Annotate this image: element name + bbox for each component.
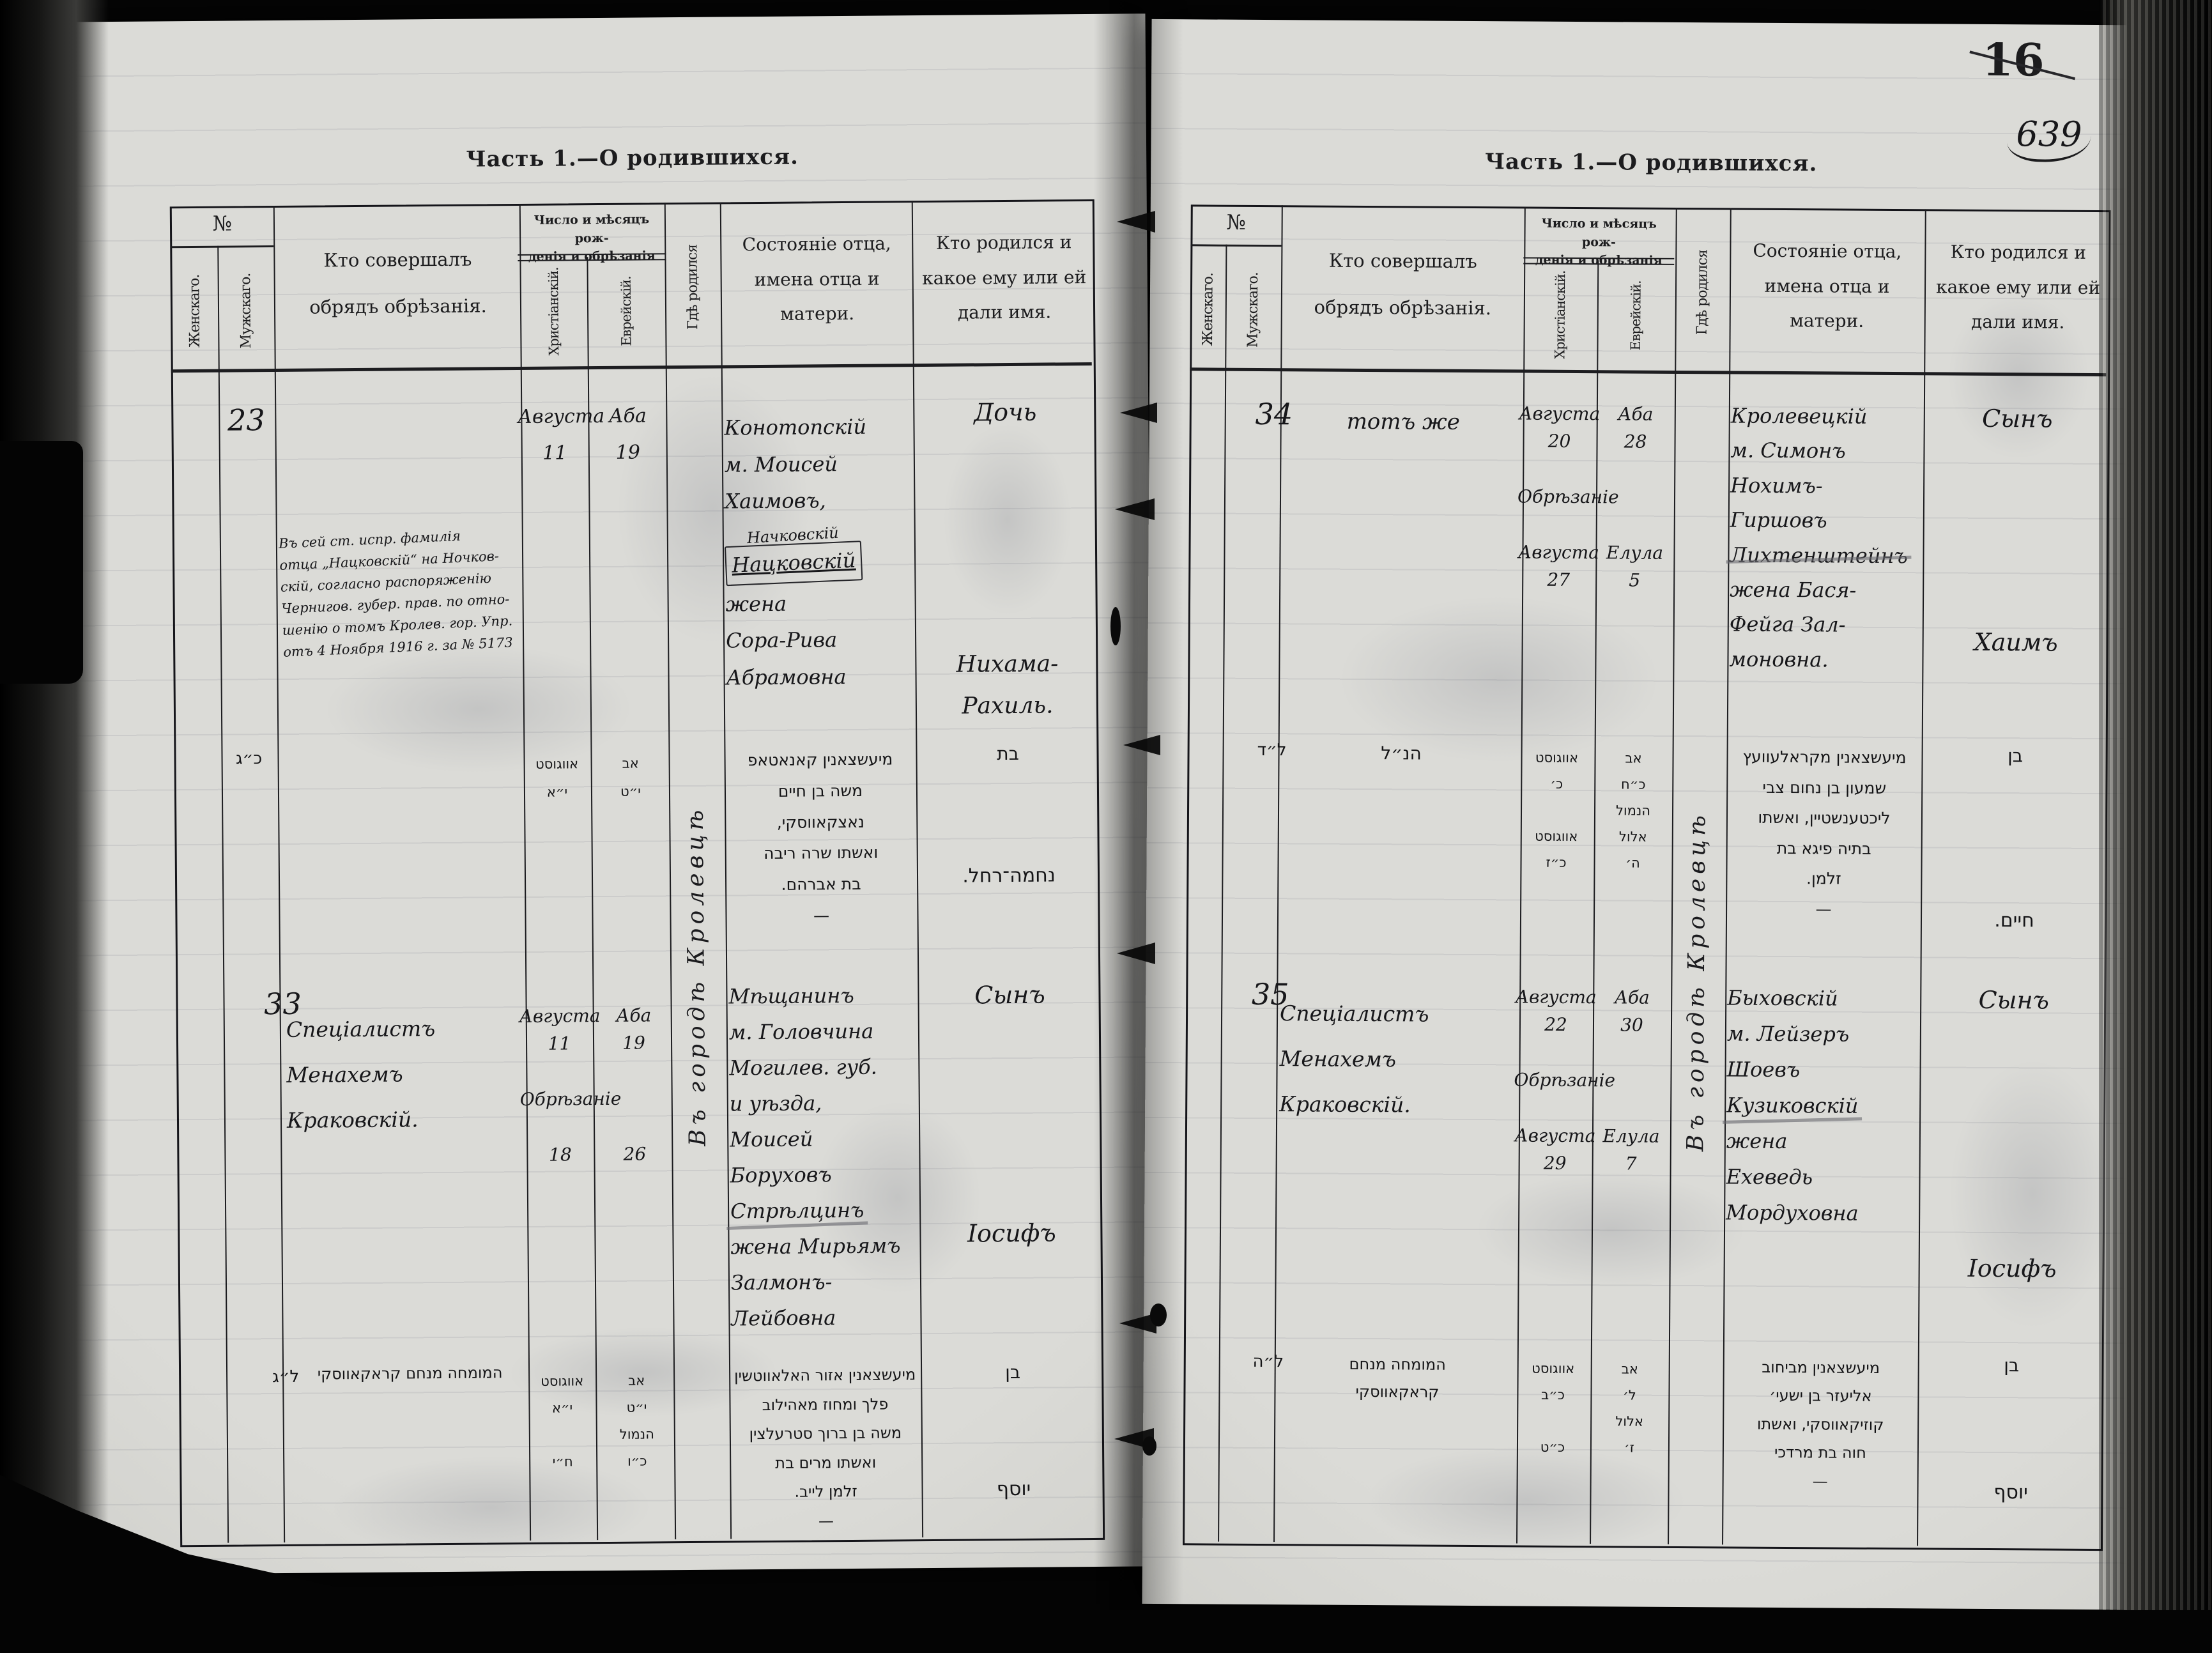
child-name: Іосифъ [1920,1254,2105,1283]
child-type: Дочь [914,397,1096,427]
date-christian: Августа 11 Обрѣзаніе 18 [519,1002,601,1169]
column-header-officiant: Кто совершалъ обрядъ обрѣзанія. [1283,237,1523,331]
child-name: Хаимъ [1924,627,2108,657]
child-name-hebrew: יוסף [1918,1480,2103,1504]
date-christian-hebrew: אווגוסט כ׳ אווגוסט כ״ז [1514,744,1599,875]
mother-text: жена Бася- Фейга Зал- моновна. [1729,572,1924,677]
birthplace-entry-vertical: Въ городѣ Кролевцѣ [663,458,730,1494]
column-header-father: Состояніе отца, имена отца и матери. [721,226,912,332]
left-page-scan: Часть 1.—О родившихся. № Число и мѣсяцъ … [51,13,1157,1574]
child-name: Нихама- Рахиль. [916,643,1098,728]
original-surname-boxed: Нацковскій [725,541,863,586]
printed-folio-number: 16 [1982,33,2045,87]
father-entry-hebrew: מיעשצאנין מביחוב אליעזר בן ישעי׳ קוזיקאו… [1721,1353,1919,1496]
officiant-entry: Спеціалистъ Менахемъ Краковскій. [286,1006,530,1144]
child-name-hebrew: חיים. [1922,909,2107,932]
child-type-hebrew: בן [922,1361,1103,1383]
mother-text: жена Мирьямъ Залмонъ- Лейбовна [730,1227,923,1336]
birthplace-entry-vertical: Въ городѣ Кролевцѣ [1665,463,1728,1499]
father-text: Быховскій м. Лейзеръ Шоевъ [1726,985,1849,1082]
child-type-hebrew: בן [1923,744,2107,767]
handwritten-folio-number: 639 [2007,114,2091,155]
column-header-number: № [171,211,273,236]
date-jewish: Аба 28 Елула 5 [1595,400,1675,594]
date-christian-hebrew: אווגוסט י״א [518,750,595,806]
date-christian-hebrew: אווגוסט כ״ב כ״ט [1510,1355,1595,1461]
record-number-hebrew: כ״ג [213,749,284,769]
mother-text: жена Ехеведь Мордуховна [1726,1123,1921,1231]
column-header-male: Мужскаго. [1225,251,1280,369]
column-header-number: № [1191,210,1282,234]
father-entry: Мѣщанинъ м. Головчина Могилев. губ. и уѣ… [728,977,923,1336]
date-jewish-hebrew: אב ל׳ אלול ז׳ [1590,1356,1669,1461]
father-entry-hebrew: מיעשצאנין מקראלעוועץ שמעון בן נחום צבי ל… [1724,741,1924,925]
officiant-entry-hebrew: המומחה מנחם קראקאווסקי [1277,1350,1517,1407]
record-number: 23 [208,403,284,438]
ink-blot [1142,1436,1156,1456]
surname-pencil-underlined: Стрѣлцинъ [730,1192,864,1229]
father-entry-hebrew: מיעשצאנין קאנאטאפ משה בן חיים נאצקאווסקי… [721,744,919,932]
column-header-female: Женскаго. [172,252,217,371]
book-scan-photo: { "corner": { "printed_folio": "16", "ha… [0,0,2212,1653]
child-type: Сынъ [1921,985,2106,1015]
column-header-christian: Христіанскій. [1524,261,1596,370]
ink-blot [1150,1303,1167,1326]
child-type: Сынъ [919,980,1100,1010]
date-jewish-hebrew: אב כ״ח הנמול אלול ה׳ [1594,745,1672,876]
date-jewish-hebrew: אב י״ט [592,749,668,806]
father-entry: Быховскій м. Лейзеръ Шоевъ Кузиковскій ж… [1726,980,1922,1231]
child-name: Іосифъ [921,1219,1102,1248]
column-header-child: Кто родился и какое ему или ей дали имя. [913,225,1095,331]
date-christian-hebrew: אווגוסט י״א ח״י [522,1367,603,1475]
child-type-hebrew: בת [917,742,1098,765]
column-header-officiant: Кто совершалъ обрядъ обрѣзанія. [275,236,520,330]
officiant-entry-hebrew: הנ״ל [1281,742,1521,764]
column-header-male: Мужскаго. [218,252,273,370]
book-edge-left [0,0,109,1653]
date-jewish-hebrew: אב י״ט הנמול כ״ו [599,1367,675,1475]
column-header-father: Состояніе отца, имена отца и матери. [1731,233,1924,339]
column-header-birthplace: Гдѣ родился [665,209,721,365]
tape-blotch [0,441,83,684]
column-header-jewish: Еврейскій. [587,256,664,365]
date-jewish: Аба 19 [590,397,666,471]
father-text: Мѣщанинъ м. Головчина Могилев. губ. и уѣ… [728,983,877,1188]
ink-blot [1110,607,1121,645]
column-header-birthplace: Гдѣ родился [1675,214,1729,371]
father-entry-hebrew: מיעשצאנין אזור האלאווטשין פלך ומחוז מאהי… [726,1360,925,1537]
column-header-christian: Христіанскій. [520,257,587,366]
gutter-shadow [1094,0,1183,1653]
father-text: Кролевецкій м. Симонъ Нохимъ- Гиршовъ [1730,403,1868,532]
officiant-entry: Спеціалистъ Менахемъ Краковскій. [1279,991,1519,1128]
bottom-background-strip [0,1610,2212,1653]
date-jewish: Аба 30 Елула 7 [1592,983,1671,1178]
date-christian: Августа 22 Обрѣзаніе Августа 29 [1514,983,1598,1178]
child-name-hebrew: נחמה־רחל. [918,864,1100,888]
surname-pencil-underlined: Кузиковскій [1726,1087,1859,1123]
officiant-entry: тотъ же [1284,408,1523,435]
marginal-annotation: Въ сей ст. испр. фамилія отца „Нацковскі… [278,522,534,663]
father-entry: Конотопскій м. Моисей Хаимовъ, Начковскі… [724,408,918,696]
surname-pencil-struck: Лихтенштейнъ [1730,537,1908,573]
book-edge-right [2099,0,2212,1653]
child-name-hebrew: יוסף [923,1477,1104,1501]
officiant-entry-hebrew: המומחה מנחם קראקאווסקי [287,1364,533,1383]
mother-text: жена Сора-Рива Абрамовна [725,585,918,696]
date-christian: Августа 11 [518,398,592,472]
page-title: Часть 1.—О родившихся. [171,142,1094,174]
child-type: Сынъ [1925,404,2110,433]
date-christian: Августа 20 Обрѣзаніе Августа 27 [1517,399,1601,594]
father-entry: Кролевецкій м. Симонъ Нохимъ- Гиршовъ Ли… [1729,398,1926,677]
right-page-scan: 16 639 Часть 1.—О родившихся. № Число и … [1142,19,2212,1610]
child-type-hebrew: בן [1919,1354,2104,1376]
father-text: Конотопскій м. Моисей Хаимовъ, [724,415,866,514]
column-header-child: Кто родился и какое ему или ей дали имя. [1926,234,2111,341]
column-header-jewish: Еврейскій. [1597,261,1674,370]
page-title: Часть 1.—О родившихся. [1191,147,2111,178]
date-jewish: Аба 19 26 [596,1001,673,1168]
column-header-female: Женскаго. [1190,250,1225,368]
